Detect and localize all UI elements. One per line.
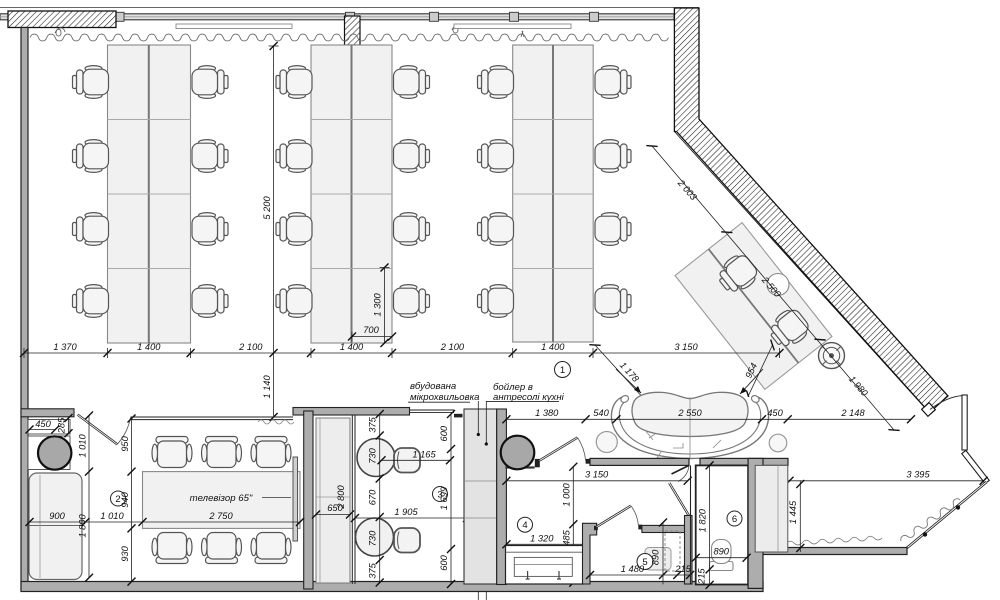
svg-text:1 905: 1 905 (394, 507, 418, 517)
svg-text:4: 4 (522, 520, 527, 531)
svg-text:1 300: 1 300 (373, 293, 383, 317)
svg-text:600: 600 (439, 425, 449, 441)
svg-text:215: 215 (674, 564, 691, 574)
svg-text:6: 6 (732, 514, 737, 525)
svg-text:1 320: 1 320 (530, 533, 554, 543)
svg-text:5 200: 5 200 (262, 196, 272, 220)
svg-text:2 100: 2 100 (238, 342, 263, 352)
svg-text:3 395: 3 395 (906, 470, 930, 480)
svg-text:1 400: 1 400 (340, 342, 364, 352)
svg-text:540: 540 (593, 408, 609, 418)
svg-text:670: 670 (368, 489, 378, 505)
svg-text:485: 485 (562, 529, 572, 545)
svg-text:730: 730 (368, 447, 378, 463)
svg-text:375: 375 (368, 562, 378, 578)
svg-text:940: 940 (120, 491, 130, 507)
svg-text:1 800: 1 800 (78, 514, 88, 538)
svg-text:450: 450 (767, 408, 783, 418)
svg-text:890: 890 (713, 547, 729, 557)
svg-text:телевізор 65": телевізор 65" (190, 493, 253, 504)
svg-text:1 699: 1 699 (439, 487, 449, 510)
svg-text:890: 890 (651, 549, 661, 565)
svg-text:1 370: 1 370 (53, 342, 77, 352)
svg-text:730: 730 (368, 530, 378, 546)
svg-text:215: 215 (697, 568, 707, 585)
svg-text:950: 950 (120, 435, 130, 451)
svg-text:600: 600 (439, 554, 449, 570)
svg-text:930: 930 (120, 545, 130, 561)
svg-text:вбудована: вбудована (410, 381, 456, 392)
svg-text:700: 700 (363, 325, 379, 335)
svg-text:2 750: 2 750 (208, 511, 233, 521)
svg-text:375: 375 (368, 416, 378, 432)
svg-text:1 000: 1 000 (562, 483, 572, 507)
svg-text:900: 900 (49, 511, 65, 521)
svg-text:мікрохвильовка: мікрохвильовка (410, 392, 480, 403)
svg-text:3 150: 3 150 (674, 342, 698, 352)
svg-text:1 010: 1 010 (100, 511, 124, 521)
svg-text:1 400: 1 400 (137, 342, 161, 352)
svg-text:2 100: 2 100 (440, 342, 465, 352)
svg-text:450: 450 (35, 419, 51, 429)
svg-text:1 140: 1 140 (262, 375, 272, 399)
svg-text:1 380: 1 380 (535, 408, 559, 418)
svg-text:285: 285 (57, 417, 67, 434)
svg-text:1 010: 1 010 (78, 434, 88, 458)
svg-text:2 148: 2 148 (840, 408, 865, 418)
svg-text:1 165: 1 165 (412, 449, 436, 459)
svg-text:1 400: 1 400 (541, 342, 565, 352)
svg-text:1 820: 1 820 (698, 508, 708, 532)
svg-text:1: 1 (560, 365, 565, 376)
svg-text:1 445: 1 445 (788, 500, 798, 524)
svg-text:1 480: 1 480 (621, 564, 645, 574)
svg-text:3 150: 3 150 (585, 470, 609, 480)
svg-text:650: 650 (327, 503, 343, 513)
svg-text:2 550: 2 550 (677, 408, 702, 418)
